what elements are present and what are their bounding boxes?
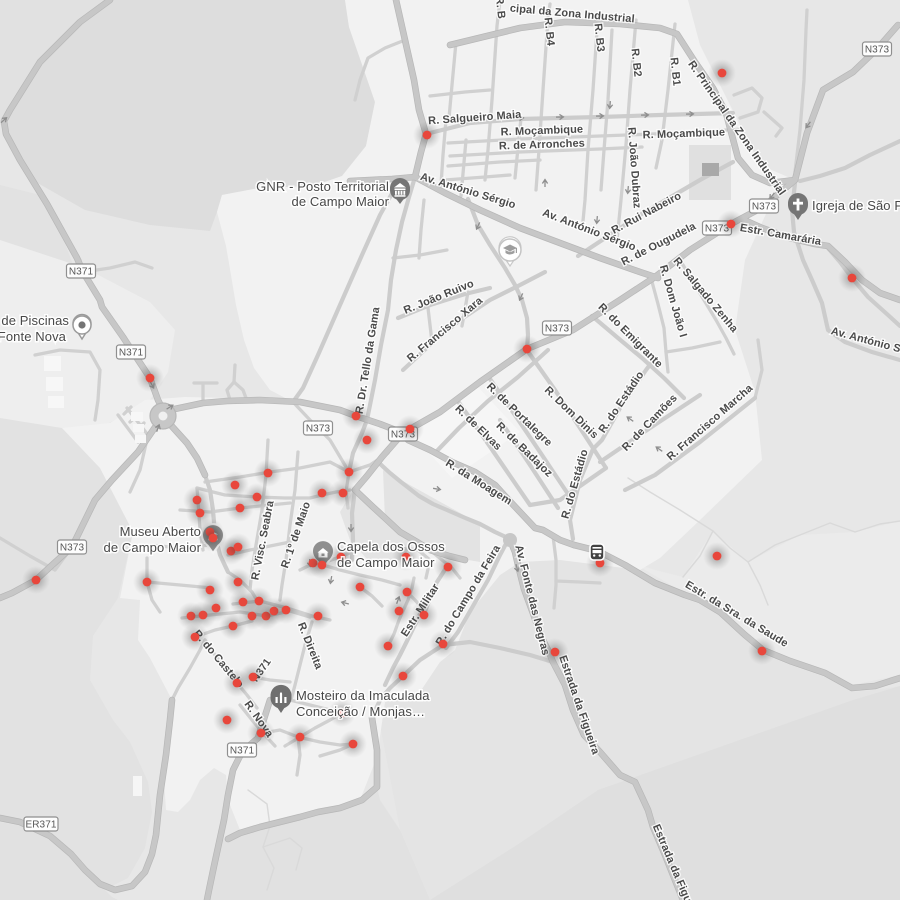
svg-text:ER371: ER371 — [25, 820, 56, 831]
svg-text:Igreja de São Pedr: Igreja de São Pedr — [812, 198, 900, 213]
svg-text:N373: N373 — [865, 45, 890, 56]
svg-text:N373: N373 — [306, 424, 331, 435]
svg-text:o de Piscinas: o de Piscinas — [0, 313, 69, 328]
svg-text:Capela dos Ossos: Capela dos Ossos — [337, 539, 445, 554]
svg-text:de Campo Maior: de Campo Maior — [104, 540, 202, 555]
svg-text:N373: N373 — [752, 202, 777, 213]
svg-text:Museu Aberto: Museu Aberto — [120, 524, 201, 539]
svg-text:Mosteiro da Imaculada: Mosteiro da Imaculada — [296, 688, 430, 703]
svg-text:a Fonte Nova: a Fonte Nova — [0, 329, 67, 344]
svg-text:R. B: R. B — [493, 0, 507, 19]
svg-text:N373: N373 — [545, 324, 570, 335]
svg-text:de Campo Maior: de Campo Maior — [337, 555, 435, 570]
svg-text:N371: N371 — [230, 746, 255, 757]
svg-text:Conceição / Monjas…: Conceição / Monjas… — [296, 704, 425, 719]
svg-text:N373: N373 — [60, 543, 85, 554]
svg-text:N371: N371 — [119, 348, 144, 359]
svg-text:N371: N371 — [69, 267, 94, 278]
svg-text:de Campo Maior: de Campo Maior — [292, 194, 390, 209]
svg-text:GNR - Posto Territorial: GNR - Posto Territorial — [256, 179, 389, 194]
